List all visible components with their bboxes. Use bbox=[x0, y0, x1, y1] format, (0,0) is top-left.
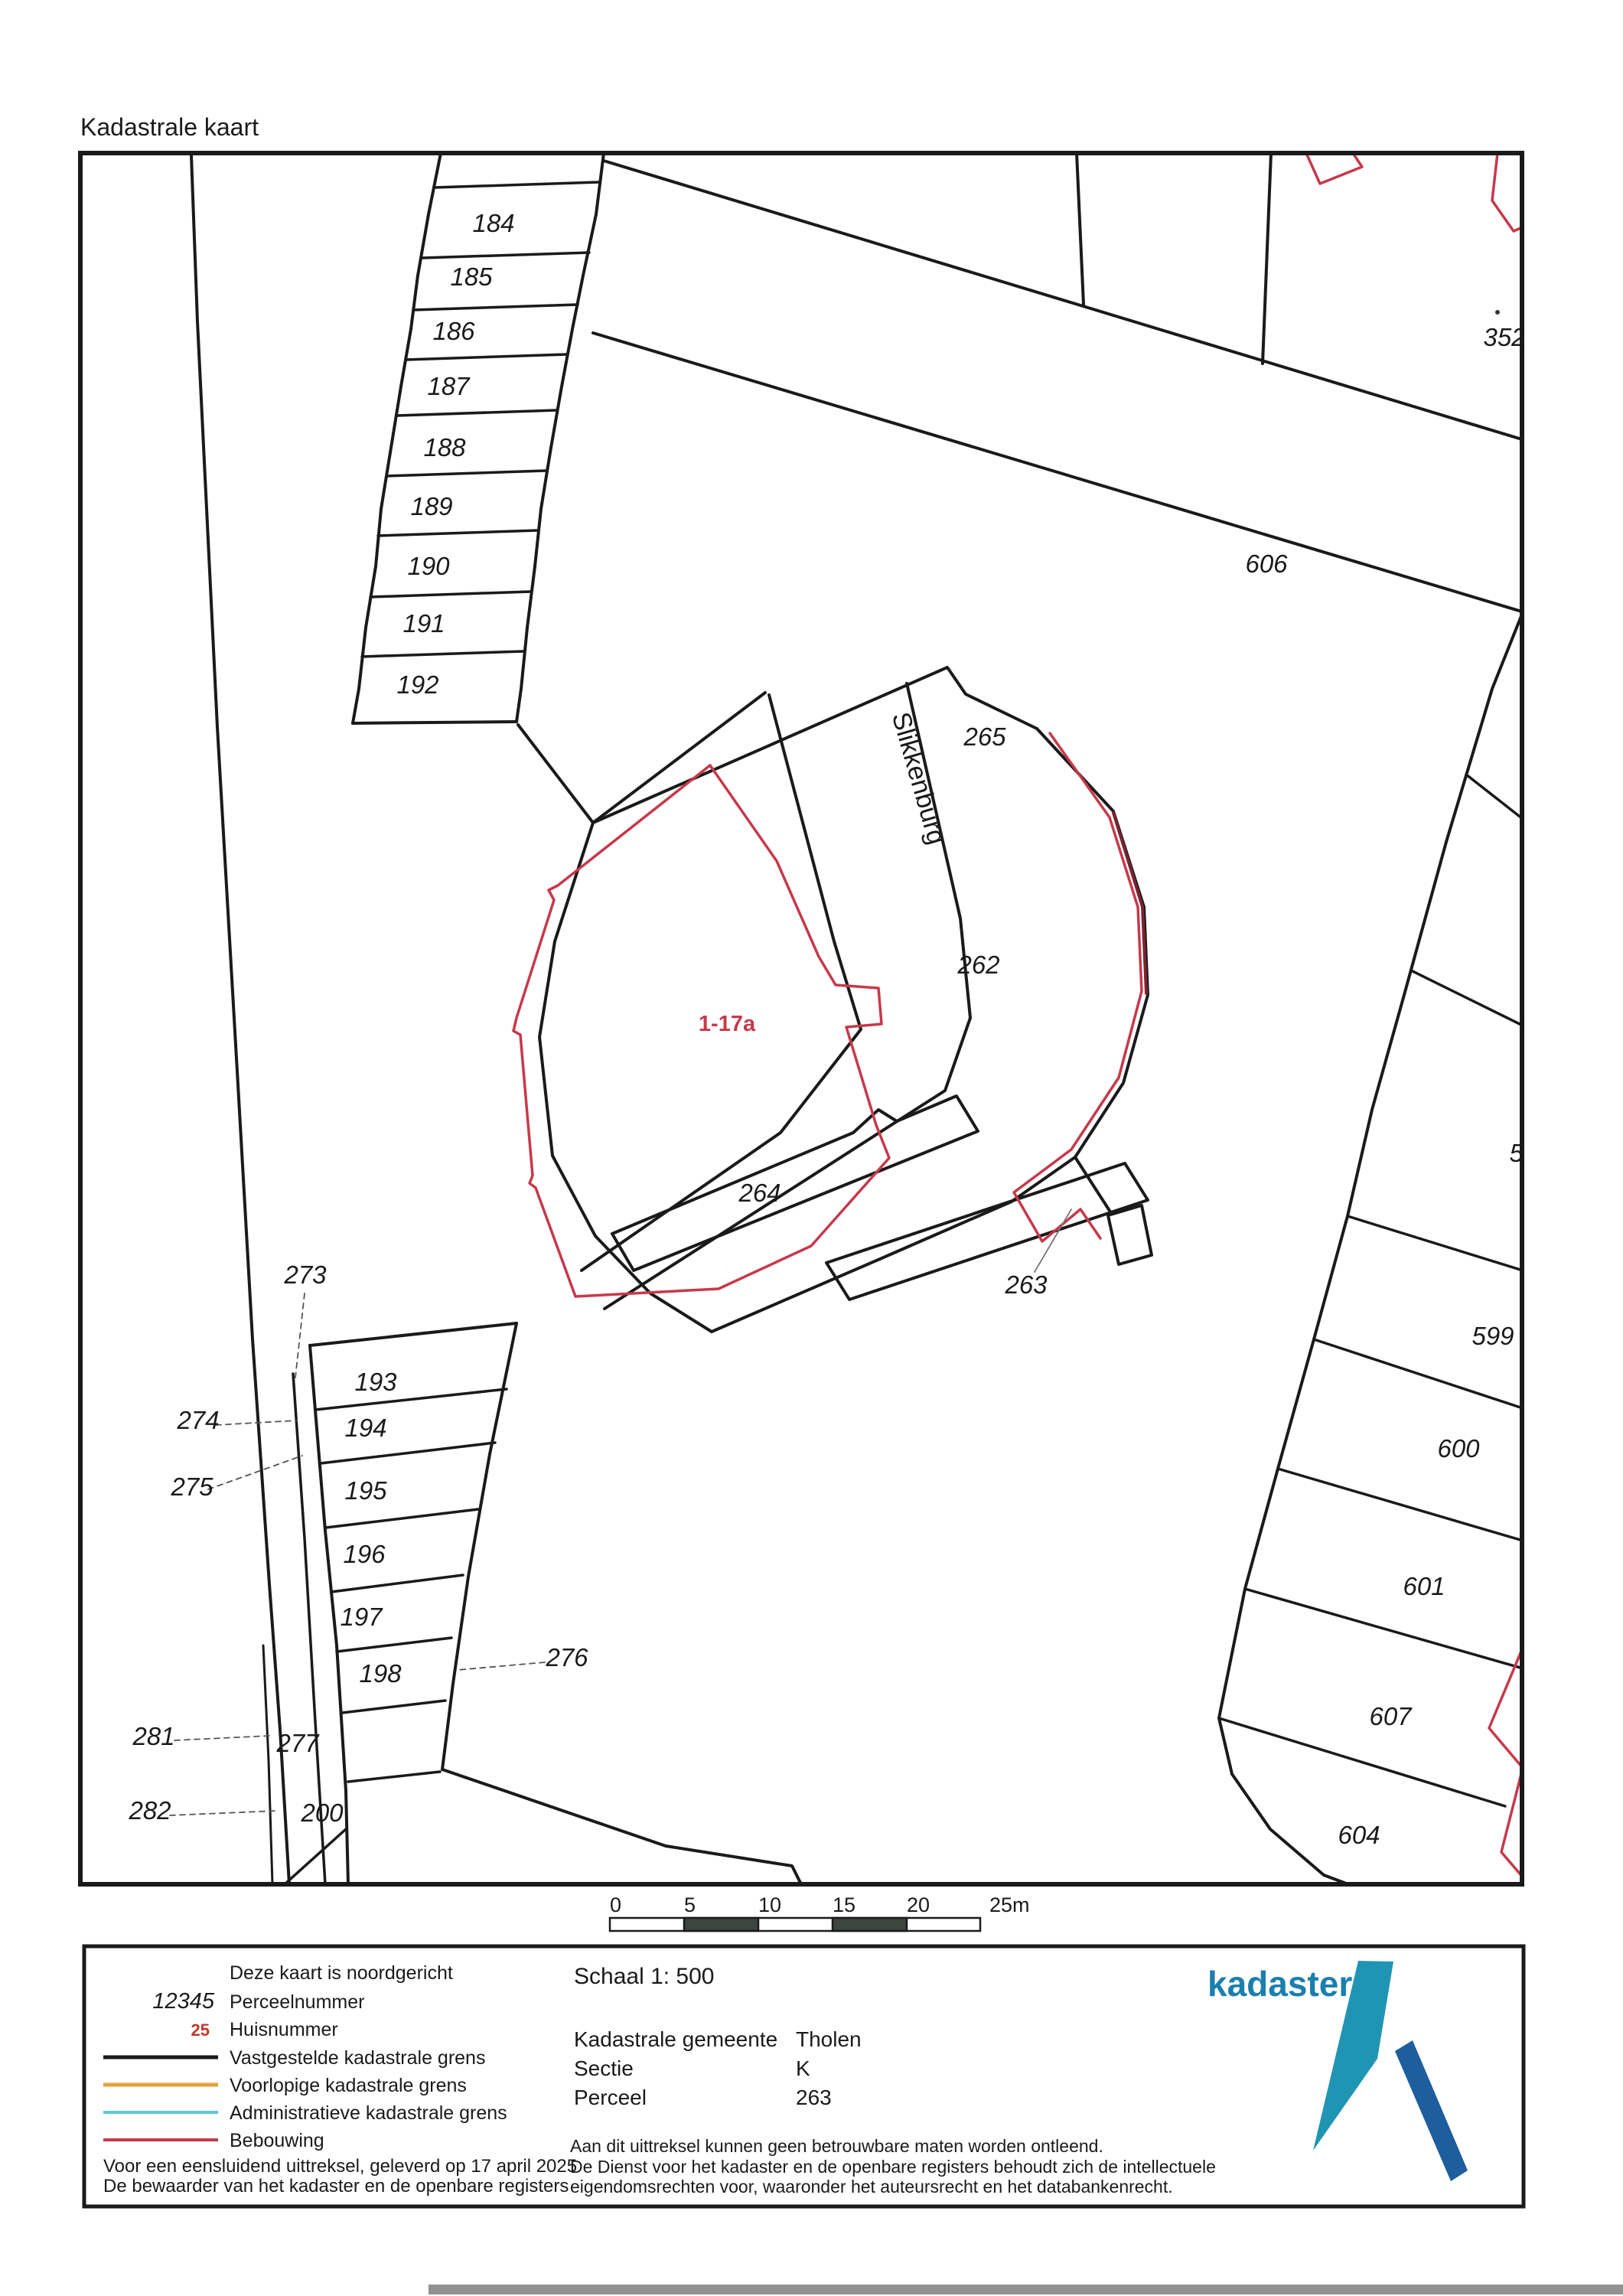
northeast-boundaries bbox=[593, 153, 1524, 612]
legend-bebouwing-label: Bebouwing bbox=[230, 2130, 324, 2151]
parcel-label-276: 276 bbox=[545, 1643, 588, 1671]
legend-vastgestelde-label: Vastgestelde kadastrale grens bbox=[230, 2047, 485, 2069]
parcel-label-186: 186 bbox=[432, 317, 475, 345]
street-label-slikkenburg: Slikkenburg bbox=[886, 709, 951, 847]
cadastral-map: 184185186187188189190191192352606265Slik… bbox=[0, 0, 1623, 2296]
legend-footer-line2: De bewaarder van het kadaster en de open… bbox=[103, 2176, 569, 2197]
legend-administratieve-label: Administratieve kadastrale grens bbox=[230, 2102, 507, 2124]
parcel-label-263: 263 bbox=[1004, 1270, 1048, 1299]
sectie-value: K bbox=[796, 2056, 810, 2080]
legend-huisnummer-label: Huisnummer bbox=[230, 2019, 338, 2040]
parcel-label-600: 600 bbox=[1437, 1434, 1480, 1463]
parcel-label-198: 198 bbox=[359, 1659, 402, 1688]
kadaster-map-page: Kadastrale kaart bbox=[0, 0, 1623, 2296]
parcel-label-282: 282 bbox=[128, 1796, 171, 1825]
parcel-label-274: 274 bbox=[176, 1406, 219, 1434]
building-north-1 bbox=[1306, 153, 1362, 184]
parcel-label-262: 262 bbox=[957, 951, 999, 979]
kadaster-logo-text: kadaster bbox=[1207, 1964, 1352, 2004]
legend-north-note: Deze kaart is noordgericht bbox=[230, 1962, 453, 1984]
scale-bar bbox=[610, 1918, 980, 1931]
disclaimer-line1: Aan dit uittreksel kunnen geen betrouwba… bbox=[570, 2136, 1103, 2156]
scale-tick-10: 10 bbox=[758, 1893, 781, 1916]
parcel-label-281: 281 bbox=[132, 1722, 174, 1750]
parcel-label-195: 195 bbox=[344, 1476, 387, 1505]
parcel-label-604: 604 bbox=[1338, 1821, 1380, 1849]
parcel-label-184: 184 bbox=[472, 209, 514, 237]
building-southeast bbox=[1489, 1644, 1524, 1879]
parcel-label-188: 188 bbox=[423, 433, 466, 461]
parcel-label-606: 606 bbox=[1245, 550, 1288, 578]
logo-blade-dark bbox=[1395, 2040, 1468, 2181]
scale-tick-15: 15 bbox=[833, 1893, 855, 1916]
map-labels: 184185186187188189190191192352606265Slik… bbox=[128, 209, 1552, 1849]
parcel-label-191: 191 bbox=[402, 609, 445, 638]
parcel-label-607: 607 bbox=[1369, 1702, 1413, 1730]
parcel-label-200: 200 bbox=[300, 1799, 344, 1827]
sectie-label: Sectie bbox=[574, 2056, 634, 2080]
parcel-label-185: 185 bbox=[450, 263, 493, 291]
gemeente-value: Tholen bbox=[796, 2027, 862, 2051]
west-boundary-lines bbox=[191, 155, 325, 1884]
leader-263 bbox=[1035, 1209, 1071, 1272]
legend-perceelnummer-label: Perceelnummer bbox=[230, 1991, 364, 2013]
perceel-value: 263 bbox=[796, 2086, 832, 2109]
parcel-label-190: 190 bbox=[407, 552, 450, 580]
parcel-label-352: 352 bbox=[1483, 323, 1525, 351]
parcel-band-264 bbox=[612, 1096, 1152, 1300]
scan-artifact-bar bbox=[429, 2285, 1623, 2294]
scale-tick-5: 5 bbox=[684, 1893, 696, 1916]
gemeente-label: Kadastrale gemeente bbox=[574, 2027, 777, 2051]
scale-segment-dark-1 bbox=[684, 1918, 758, 1931]
east-strip-598-604 bbox=[1219, 608, 1524, 1884]
parcel-label-601: 601 bbox=[1403, 1572, 1445, 1600]
scale-tick-20: 20 bbox=[907, 1893, 930, 1916]
legend-line-samples bbox=[103, 2057, 218, 2140]
parcel-label-273: 273 bbox=[283, 1261, 327, 1289]
legend-huisnummer-sample: 25 bbox=[191, 2020, 210, 2040]
scan-dot bbox=[1495, 310, 1500, 315]
parcel-label-265: 265 bbox=[963, 722, 1006, 751]
parcel-label-192: 192 bbox=[396, 670, 438, 699]
parcel-label-197: 197 bbox=[340, 1603, 383, 1631]
ui-labels: 0510152025mDeze kaart is noordgericht123… bbox=[103, 1893, 1352, 2197]
scale-tick-0: 0 bbox=[610, 1893, 621, 1916]
bebouwing-outlines bbox=[513, 153, 1524, 1879]
disclaimer-line3: eigendomsrechten voor, waaronder het aut… bbox=[570, 2177, 1173, 2197]
parcel-label-196: 196 bbox=[343, 1540, 386, 1568]
parcel-label-187: 187 bbox=[427, 372, 471, 400]
parcel-label-194: 194 bbox=[344, 1414, 386, 1442]
parcel-label-264: 264 bbox=[738, 1179, 781, 1207]
perceel-label: Perceel bbox=[574, 2086, 647, 2109]
parcel-label-277: 277 bbox=[275, 1729, 320, 1757]
parcel-label-598: 598 bbox=[1509, 1139, 1552, 1167]
scale-text: Schaal 1: 500 bbox=[574, 1964, 714, 1989]
parcel-strip-184-192 bbox=[353, 153, 604, 723]
legend-perceelnummer-sample: 12345 bbox=[152, 1989, 215, 2014]
parcel-label-189: 189 bbox=[410, 492, 452, 520]
house-number-label-1-17a: 1-17a bbox=[699, 1012, 756, 1036]
disclaimer-line2: De Dienst voor het kadaster en de openba… bbox=[570, 2157, 1216, 2177]
legend-voorlopige-label: Voorlopige kadastrale grens bbox=[230, 2075, 467, 2096]
scale-segment-dark-2 bbox=[833, 1918, 907, 1931]
map-frame bbox=[80, 153, 1522, 1884]
scale-tick-25m: 25m bbox=[989, 1893, 1030, 1916]
building-north-2 bbox=[1492, 153, 1524, 231]
legend-footer-line1: Voor een eensluidend uittreksel, gelever… bbox=[103, 2156, 577, 2177]
parcel-label-193: 193 bbox=[354, 1368, 397, 1396]
parcel-label-599: 599 bbox=[1471, 1322, 1514, 1350]
parcel-label-275: 275 bbox=[170, 1473, 213, 1501]
